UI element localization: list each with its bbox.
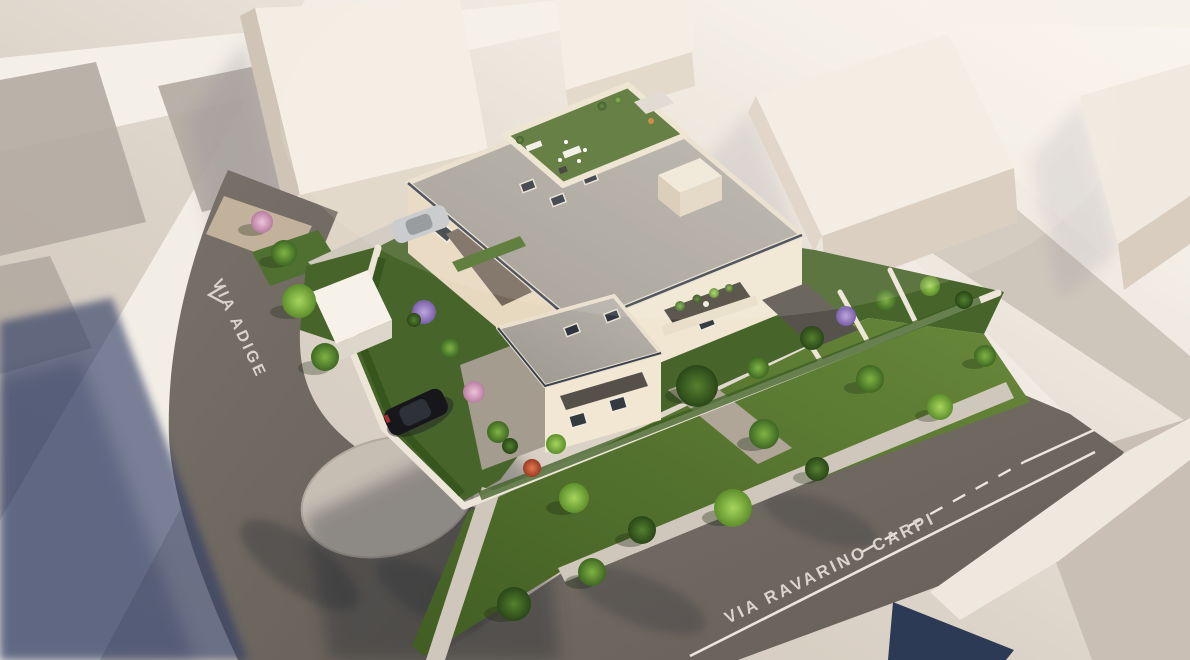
bush [463,381,485,403]
aerial-scene: VIA ADIGE VIA RAVARINO CARPI [0,0,1190,660]
bush [955,291,973,309]
bush [523,459,541,477]
architectural-render: VIA ADIGE VIA RAVARINO CARPI [0,0,1190,660]
bush [747,357,769,379]
bush [836,306,856,326]
bush [546,434,566,454]
bush [440,338,460,358]
bush [800,326,824,350]
